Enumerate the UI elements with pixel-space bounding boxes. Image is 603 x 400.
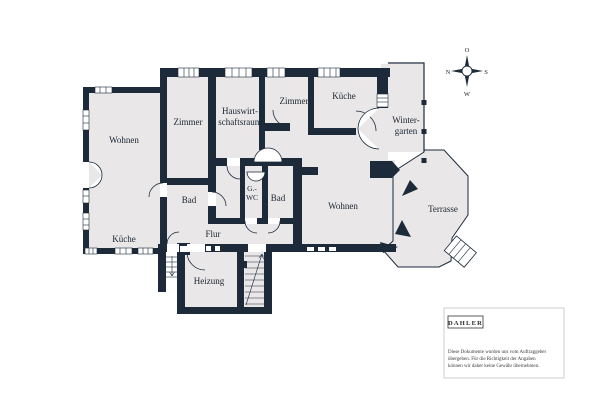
compass-label-top: O <box>465 47 470 54</box>
floorplan-page: Wohnen Küche Zimmer Hauswirt- schaftsrau… <box>0 0 603 400</box>
compass-label-bottom: W <box>464 91 471 98</box>
compass-rose-icon: O N S W <box>446 47 489 98</box>
room-label-kueche-left: Küche <box>112 234 136 244</box>
branding-card: DAHLER Diese Dokumente wurden uns vom Au… <box>444 308 564 378</box>
room-label-hauswirtschaftsraum-line1: Hauswirt- <box>222 106 258 116</box>
room-label-bad-left: Bad <box>182 195 197 205</box>
room-label-gwc-line1: G.- <box>247 184 257 193</box>
compass-label-left: N <box>446 69 451 76</box>
room-label-zimmer-left: Zimmer <box>174 117 203 127</box>
room-label-zimmer-top: Zimmer <box>280 96 309 106</box>
room-label-heizung: Heizung <box>194 276 225 286</box>
room-label-flur: Flur <box>205 229 220 239</box>
room-label-wintergarten-line2: garten <box>395 126 418 136</box>
room-label-bad-mid: Bad <box>271 193 286 203</box>
room-label-wohnen-left: Wohnen <box>109 135 139 145</box>
disclaimer-line1: Diese Dokumente wurden uns vom Auftragge… <box>448 350 547 355</box>
dahler-logo-text: DAHLER <box>448 320 483 327</box>
room-label-wintergarten-line1: Winter- <box>392 115 419 125</box>
room-label-hauswirtschaftsraum-line2: schaftsraum <box>218 117 261 127</box>
room-label-gwc-line2: WC <box>246 193 258 202</box>
floorplan-drawing: Wohnen Küche Zimmer Hauswirt- schaftsrau… <box>0 0 603 400</box>
disclaimer-line3: können wir daher keine Gewähr übernehmen… <box>448 364 539 369</box>
disclaimer-line2: übergeben. Für die Richtigkeit der Angab… <box>448 357 536 362</box>
room-label-wohnen-right: Wohnen <box>328 201 358 211</box>
room-label-kueche-top: Küche <box>332 91 356 101</box>
room-label-terrasse: Terrasse <box>428 204 458 214</box>
compass-label-right: S <box>484 69 488 76</box>
